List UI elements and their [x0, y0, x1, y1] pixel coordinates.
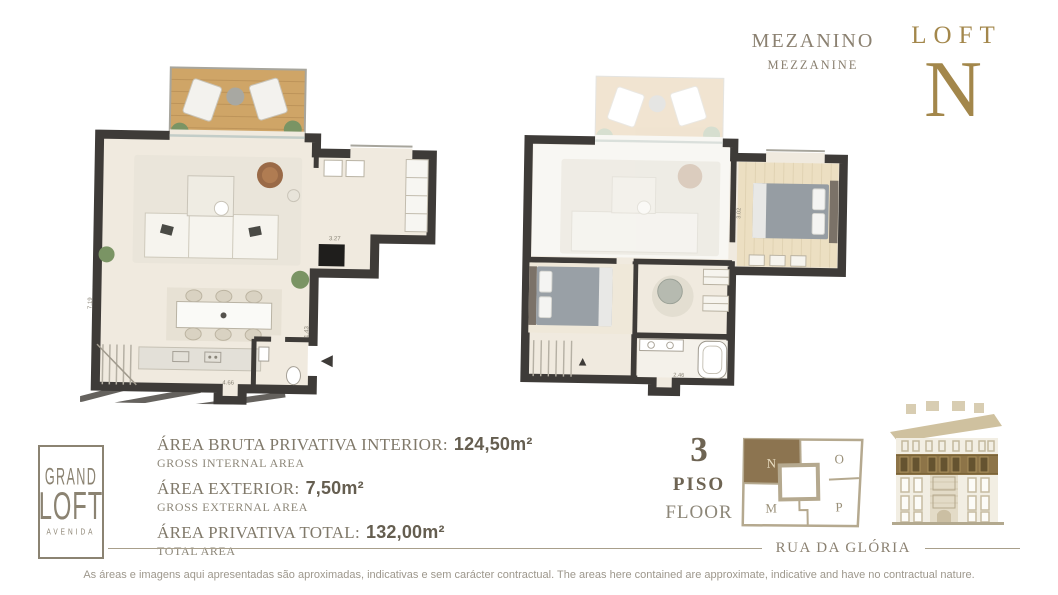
dimension-label: 1.43	[304, 325, 310, 337]
round-chair	[657, 279, 682, 304]
logo-line-loft: LOFT	[39, 485, 104, 530]
sink	[640, 339, 684, 351]
floor-number: 3	[653, 432, 745, 467]
floor-label-en: FLOOR	[653, 502, 745, 524]
street-name: RUA DA GLÓRIA	[762, 540, 925, 557]
entry-arrow-icon	[321, 355, 333, 367]
area-label: ÁREA EXTERIOR:	[157, 479, 300, 498]
stairs	[96, 344, 137, 385]
void-ghost-furniture	[560, 159, 721, 256]
chimneys	[906, 401, 984, 414]
area-value: 7,50m²	[306, 478, 364, 498]
unit-label-p: P	[835, 499, 842, 514]
disclaimer-text: As áreas e imagens aqui apresentadas são…	[0, 569, 1058, 581]
entry-door	[307, 346, 333, 376]
street-line	[108, 548, 762, 549]
dimension-label: 3.02	[736, 208, 742, 219]
area-label: ÁREA BRUTA PRIVATIVA INTERIOR:	[157, 435, 448, 454]
brochure-page: 7.19 3.27 4.66 1.43	[0, 0, 1058, 595]
headboard	[829, 181, 839, 244]
plan-title: MEZANINO MEZZANINE	[738, 30, 888, 73]
floorplan-main-floor: 7.19 3.27 4.66 1.43	[80, 54, 441, 408]
floor-label-pt: PISO	[653, 474, 745, 496]
unit-label-n: N	[767, 456, 777, 471]
floorplan-mezzanine: 3.02 2.46	[510, 54, 852, 408]
area-row-exterior: ÁREA EXTERIOR:7,50m² GROSS EXTERNAL AREA	[157, 478, 557, 515]
headboard	[528, 266, 537, 325]
balcony-recess	[350, 146, 412, 161]
unit-letter: N	[903, 52, 1003, 128]
area-value: 124,50m²	[454, 434, 533, 454]
tech-closet	[318, 244, 344, 266]
unit-title: LOFT N	[903, 22, 1003, 128]
area-sublabel: GROSS INTERNAL AREA	[157, 456, 557, 471]
logo-line-avenida: AVENIDA	[46, 528, 95, 536]
area-row-internal: ÁREA BRUTA PRIVATIVA INTERIOR:124,50m² G…	[157, 434, 557, 471]
highlighted-floor	[896, 454, 998, 475]
kitchen-island	[166, 287, 282, 342]
bedroom-left	[528, 262, 633, 334]
roof	[890, 414, 1002, 442]
bathtub	[698, 341, 727, 378]
facade-center-strip	[930, 475, 958, 522]
floor-indicator: 3 PISO FLOOR	[653, 432, 745, 524]
area-sublabel: GROSS EXTERNAL AREA	[157, 500, 557, 515]
street-row: RUA DA GLÓRIA	[108, 540, 1020, 557]
street-line	[925, 548, 1020, 549]
unit-label-m: M	[765, 501, 777, 516]
brand-logo: GRAND LOFT AVENIDA	[38, 445, 104, 559]
dimension-label: 7.19	[88, 297, 94, 309]
unit-key-plan: N O M P	[737, 430, 879, 534]
entrance-arch	[937, 510, 951, 522]
dimension-label: 3.27	[329, 236, 341, 242]
plan-title-pt: MEZANINO	[738, 30, 888, 53]
dimension-label: 2.46	[673, 373, 684, 379]
building-elevation	[890, 396, 1008, 532]
plan-title-en: MEZZANINE	[738, 58, 888, 73]
key-plan-core	[780, 465, 819, 500]
balcony-recess	[766, 152, 825, 164]
area-value: 132,00m²	[366, 522, 445, 542]
dimension-label: 4.66	[222, 380, 234, 386]
bedroom-right	[737, 162, 839, 268]
building-base	[892, 522, 1004, 525]
kitchen-counter	[139, 347, 261, 371]
unit-label-o: O	[834, 451, 844, 466]
